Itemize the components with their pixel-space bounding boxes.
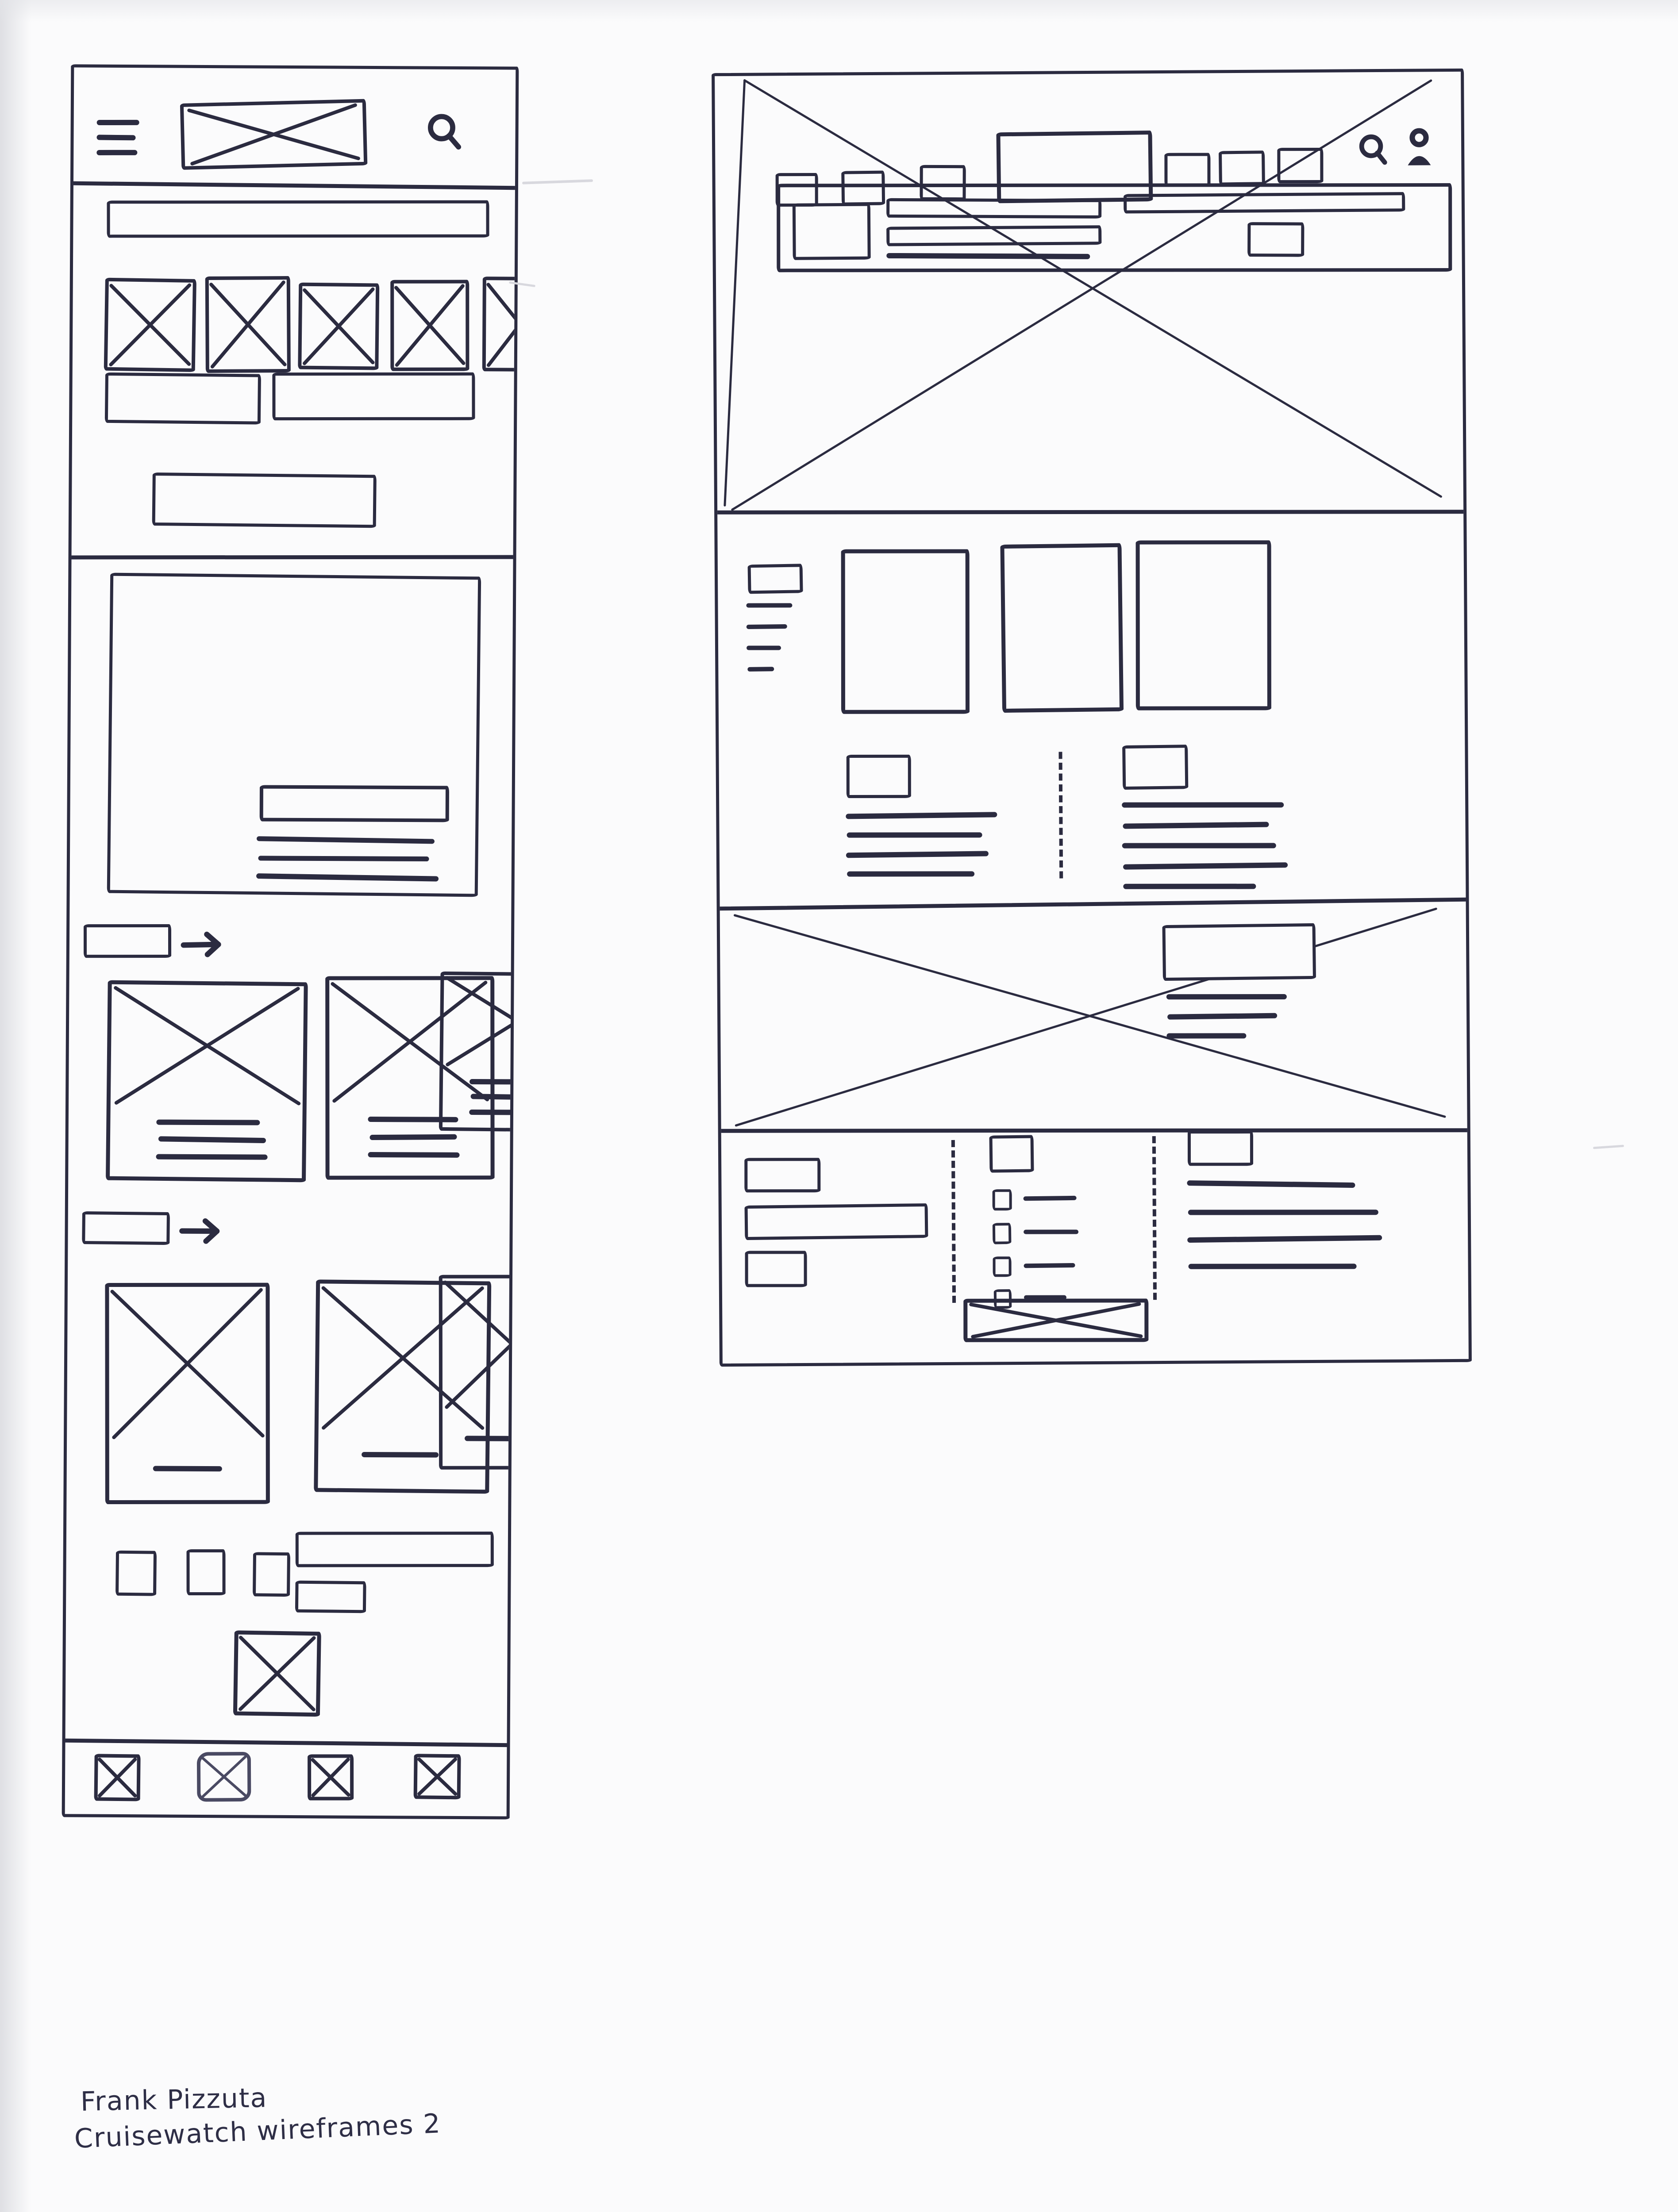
checkbox-square <box>993 1256 1012 1277</box>
search-icon <box>1356 134 1391 171</box>
text-line <box>847 871 974 876</box>
search-input <box>107 200 489 238</box>
text-block-heading <box>847 755 911 798</box>
text-line <box>1189 1263 1357 1269</box>
text-line <box>846 812 997 819</box>
text-line <box>369 1134 457 1140</box>
section-divider <box>717 1128 1472 1133</box>
text-line <box>153 1466 222 1471</box>
text-block-heading <box>1122 745 1188 790</box>
dashed-divider <box>951 1140 956 1303</box>
section-divider <box>713 510 1470 514</box>
arrow-right-icon <box>180 928 229 960</box>
hamburger-bar <box>96 150 137 155</box>
dashed-divider <box>1058 752 1063 878</box>
footer-heading-box <box>1188 1130 1253 1166</box>
text-line <box>156 1154 268 1160</box>
checkbox-line <box>1024 1196 1077 1201</box>
text-line <box>469 1110 519 1115</box>
text-line <box>1123 862 1288 870</box>
text-line <box>368 1152 460 1158</box>
text-line <box>470 1079 519 1085</box>
footer-nav-icon <box>197 1752 251 1802</box>
cta-button <box>152 472 377 528</box>
filter-chip <box>105 373 261 425</box>
search-icon <box>425 114 463 154</box>
footer-divider <box>62 1739 519 1747</box>
search-panel <box>777 183 1452 272</box>
text-line <box>258 856 429 861</box>
hamburger-bar <box>97 120 139 125</box>
hamburger-bar <box>96 134 135 140</box>
hamburger-icon <box>96 120 141 161</box>
text-line <box>1122 843 1276 848</box>
text-line <box>465 1436 519 1442</box>
footer-input <box>296 1532 494 1567</box>
text-line <box>747 624 787 629</box>
input-bar <box>886 198 1101 219</box>
filter-chip <box>272 373 475 420</box>
checkbox-square <box>993 1189 1012 1210</box>
image-placeholder-x <box>111 984 304 1107</box>
text-line <box>257 836 435 844</box>
footer-heading-box <box>989 1135 1034 1173</box>
text-line <box>1187 1235 1382 1243</box>
dashed-divider <box>1152 1136 1157 1300</box>
thumbnail-image-placeholder <box>298 283 379 370</box>
text-line <box>1122 802 1284 807</box>
section-label <box>82 1211 170 1245</box>
nav-item-box <box>1219 150 1265 185</box>
text-line <box>157 1119 260 1125</box>
content-card <box>439 1275 519 1469</box>
feature-button <box>260 785 449 822</box>
text-line <box>1187 1180 1355 1188</box>
date-field <box>793 203 871 260</box>
footer-input <box>744 1203 928 1240</box>
search-button <box>1247 222 1304 257</box>
paper-sheet: Frank Pizzuta Cruisewatch wireframes 2 <box>0 0 1678 2212</box>
text-line <box>847 832 982 837</box>
footer-label <box>744 1158 820 1192</box>
checkbox-line <box>1024 1230 1078 1234</box>
image-placeholder-x <box>443 1278 519 1409</box>
annotation-author: Frank Pizzuta <box>80 2082 268 2117</box>
text-line <box>1123 884 1256 889</box>
thumbnail-image-placeholder <box>482 276 519 372</box>
logo-image-placeholder <box>180 99 368 170</box>
desktop-wireframe-frame <box>712 69 1472 1367</box>
pencil-smudge <box>1593 1145 1624 1149</box>
text-line <box>1123 822 1269 829</box>
thumbnail-image-placeholder <box>390 280 469 371</box>
text-line <box>747 645 781 650</box>
footer-nav-icon <box>308 1754 354 1800</box>
text-line <box>256 873 439 881</box>
column-card <box>841 549 970 714</box>
content-card <box>105 1283 269 1504</box>
text-line <box>158 1136 266 1143</box>
header-divider <box>68 181 519 190</box>
footer-social-square <box>253 1552 290 1597</box>
checkbox-line <box>1024 1263 1075 1268</box>
sidebar-label <box>748 564 803 594</box>
info-card <box>1162 923 1316 981</box>
feature-card <box>107 573 481 897</box>
payment-image-placeholder <box>963 1298 1148 1342</box>
footer-nav-icon <box>414 1754 461 1799</box>
checkbox-square <box>993 1223 1012 1244</box>
text-line <box>747 667 774 672</box>
text-line <box>746 603 792 607</box>
nav-item-box <box>1164 153 1210 187</box>
text-line <box>362 1452 439 1458</box>
content-card <box>106 980 308 1183</box>
input-bar <box>886 225 1101 246</box>
column-card <box>1136 540 1271 710</box>
mobile-wireframe-frame <box>62 64 519 1819</box>
footer-button <box>295 1581 366 1613</box>
text-line <box>1166 1033 1246 1038</box>
image-placeholder-x <box>443 975 519 1068</box>
image-placeholder-x <box>109 1287 266 1440</box>
content-card <box>439 972 519 1133</box>
input-bar <box>1124 192 1405 213</box>
section-label <box>84 924 171 958</box>
text-line <box>886 253 1090 259</box>
text-line <box>1166 994 1287 999</box>
nav-item-box <box>1277 148 1323 183</box>
text-line <box>471 1094 519 1100</box>
section-divider <box>66 555 519 560</box>
column-card <box>1000 543 1124 713</box>
footer-social-square <box>115 1551 157 1596</box>
arrow-right-icon <box>178 1215 227 1246</box>
text-line <box>846 851 989 858</box>
thumbnail-image-placeholder <box>104 278 196 372</box>
footer-label <box>745 1251 807 1287</box>
user-icon <box>1402 128 1437 168</box>
footer-image-placeholder <box>233 1630 321 1717</box>
promo-image-placeholder <box>720 904 1467 1130</box>
text-line <box>1188 1210 1378 1215</box>
footer-social-square <box>186 1549 225 1595</box>
footer-nav-icon <box>94 1754 141 1801</box>
pencil-smudge <box>522 179 593 184</box>
thumbnail-image-placeholder <box>205 276 291 373</box>
